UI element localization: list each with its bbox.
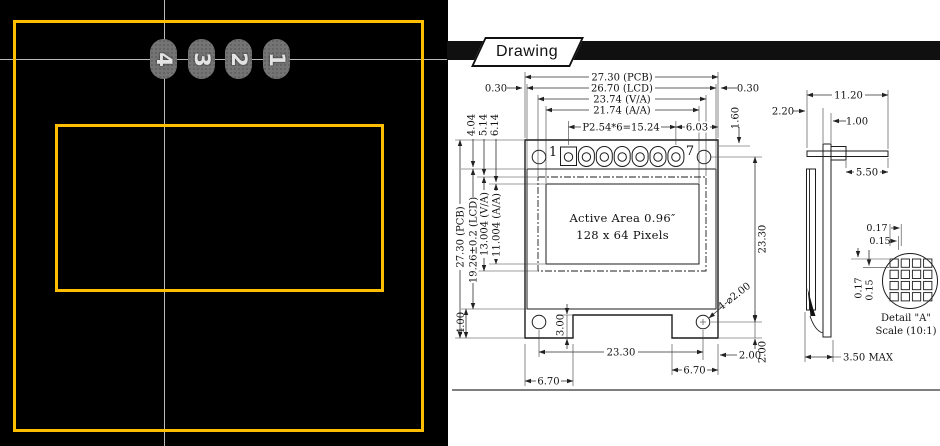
dim-tab-left: 6.70 [537,377,559,388]
product-drawing-page: 4 3 2 1 Drawing Active Area 0.96″ 128 x … [0,0,940,446]
dim-pin-top: 1.60 [731,107,742,129]
pin7-label: 7 [686,144,694,159]
dim-aa-width: 21.74 (A/A) [593,106,651,117]
dim-glass-bottom: 4.00 [456,312,467,334]
dim-lcd-width: 26.70 (LCD) [591,84,653,95]
dim-hole-inset-y: 2.00 [758,341,769,363]
dim-pcb-width: 27.30 (PCB) [591,73,652,84]
detail-a-title: Detail "A" [881,313,931,324]
solder-pad-2: 2 [225,39,252,79]
active-area-line2: 128 x 64 Pixels [576,228,669,242]
flex-connector [808,288,816,316]
dim-tab-right: 6.70 [683,366,705,377]
dim-edge-right: 0.30 [737,84,759,95]
pad-label: 1 [266,52,287,67]
pad-label: 2 [228,52,249,67]
dim-pixel-pitch-v: 0.17 [854,277,865,298]
pin-header-pads [561,147,684,167]
pad-label: 3 [191,52,212,67]
dim-pcb-height: 27.30 (PCB) [456,206,467,267]
dim-va-height: 13.004 (V/A) [480,192,491,256]
mounting-hole-bottom-left [532,315,546,329]
dim-hole-span-v: 23.30 [758,225,769,254]
dim-glass-top: 4.04 [467,114,478,136]
pixel-grid [890,259,932,301]
mounting-hole-top-left [532,150,546,164]
dim-pin-pitch: P2.54*6=15.24 [582,123,659,134]
pin1-label: 1 [549,145,557,160]
solder-pad-1: 1 [263,39,290,79]
dim-hole-callout: 4-⌀2.00 [716,281,753,313]
dim-hole-span-h: 23.30 [607,348,636,359]
pcb-side [823,144,831,337]
front-view: Active Area 0.96″ 128 x 64 Pixels 1 7 [455,72,769,388]
solder-pad-3: 3 [188,39,215,79]
dim-lcd-height: 19.26±0.2 (LCD) [469,197,480,283]
dim-aa-top: 6.14 [490,114,501,136]
dim-pin-front: 2.20 [772,107,794,118]
dim-pcb-thickness: 1.00 [846,117,868,128]
display-window-rect [55,124,384,292]
dim-aa-height: 11.004 (A/A) [492,193,503,257]
dim-va-width: 23.74 (V/A) [593,95,651,106]
dim-total-thickness: 3.50 MAX [843,353,894,364]
dim-pin-back: 5.50 [856,168,878,179]
dim-pixel-size-h: 0.15 [869,236,890,247]
dim-pin-edge: 6.03 [686,123,708,134]
detail-a-scale: Scale (10:1) [876,326,937,337]
technical-drawing: Active Area 0.96″ 128 x 64 Pixels 1 7 [448,60,940,446]
dim-pixel-size-v: 0.15 [865,279,876,300]
detail-a: 0.17 0.15 0.17 0.15 Detail "A" Scale (10… [851,223,938,337]
solder-pad-4: 4 [150,39,177,79]
pcb-photo-panel: 4 3 2 1 [0,0,448,446]
section-title: Drawing [496,43,558,61]
dim-pin-length: 11.20 [834,91,863,102]
dim-edge-left: 0.30 [485,84,507,95]
dim-pixel-pitch-h: 0.17 [866,223,887,234]
dim-va-top: 5.14 [479,114,490,136]
dim-notch-depth: 3.00 [556,314,567,336]
active-area-line1: Active Area 0.96″ [568,211,676,225]
pin-rod [807,151,888,157]
pad-label: 4 [153,52,174,67]
glass-side [807,169,816,310]
pin-spacer [831,147,846,161]
